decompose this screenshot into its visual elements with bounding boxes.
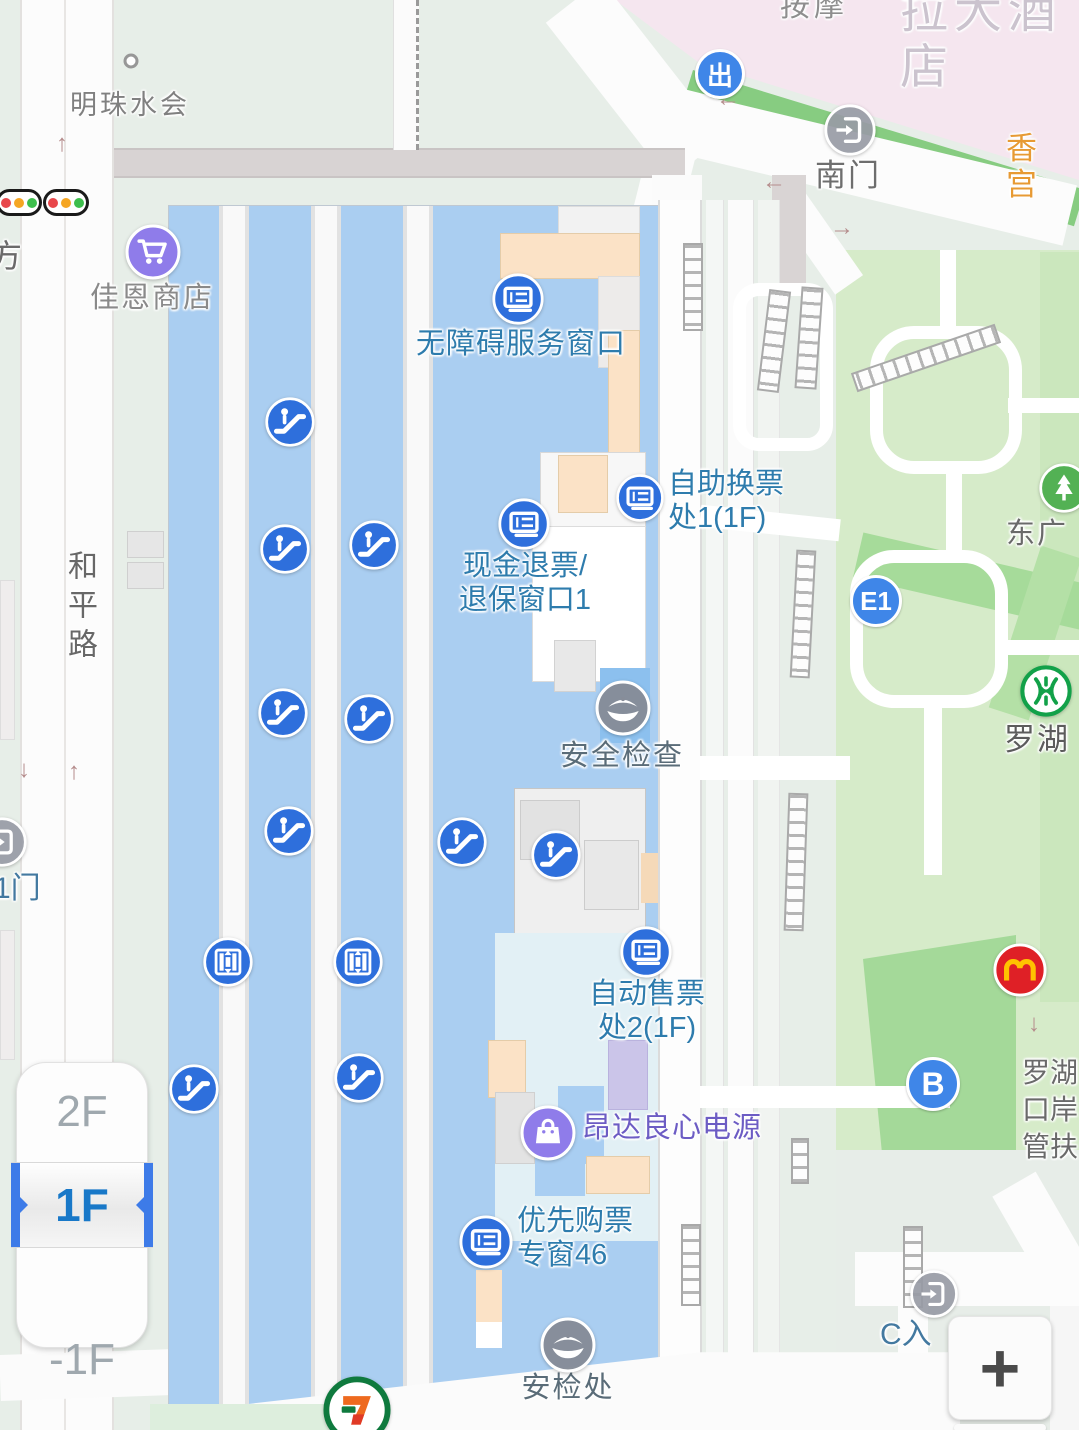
escalator-icon[interactable] [257,687,309,739]
cash-refund-window-label[interactable]: 现金退票/ 退保窗口1 [459,550,591,617]
park-path [700,756,850,780]
park-path [940,250,956,332]
bag-icon[interactable] [519,1104,577,1162]
floor-minus1f-label: -1F [49,1335,115,1385]
floor-2f-label: 2F [56,1087,107,1137]
selection-bar-left [11,1163,20,1247]
road-arrow-icon: ↑ [68,758,80,786]
elevator-icon[interactable] [332,936,384,988]
platform-block [127,531,164,558]
corridor [706,200,724,1430]
park-path [946,462,962,558]
tree-icon[interactable] [1038,462,1079,514]
angda-power-label[interactable]: 昂达良心电源 [582,1112,762,1146]
roadside-building [0,930,15,1060]
zoom-out-button-partial[interactable] [954,1424,1046,1430]
traffic-icon [43,189,89,235]
c-entrance-label[interactable]: C入 [880,1318,932,1353]
jiaen-store-label[interactable]: 佳恩商店 [90,282,214,316]
road-arrow-icon: ← [716,85,740,113]
map-badge-B[interactable]: B [906,1057,960,1111]
room [608,1040,648,1110]
zoom-in-button[interactable]: + [948,1316,1052,1420]
elevator-icon[interactable] [202,936,254,988]
park-path-loop [850,550,1008,708]
floor-2f-button[interactable]: 2F [16,1062,148,1162]
room [586,1156,650,1194]
stairs-icon [791,1138,809,1184]
seven-icon[interactable] [322,1375,392,1430]
map-badge-E1[interactable]: E1 [850,575,902,627]
ticket-icon[interactable] [458,1214,514,1270]
east-plaza-label: 东广 [1006,518,1068,552]
gate-icon[interactable] [823,103,877,157]
room [535,1158,585,1196]
ticket-icon[interactable] [497,497,551,551]
room [476,1270,502,1322]
escalator-icon[interactable] [343,693,395,745]
ticket-exchange-1-label[interactable]: 自助换票 处1(1F) [668,468,784,535]
park-path [924,700,942,875]
escalator-icon[interactable] [348,519,400,571]
poidot-icon [124,54,139,69]
zoom-in-label: + [980,1333,1021,1403]
roadside-building [0,580,15,740]
lawn-corner [150,1404,335,1430]
ticket-office-2-label[interactable]: 自动售票 处2(1F) [589,978,705,1045]
south-gate-label[interactable]: 南门 [815,158,881,194]
hotel-label: 拉大酒店 [900,0,1079,95]
floor-selector[interactable]: 2F 1F -1F [16,1062,148,1348]
barrier-free-window-label[interactable]: 无障碍服务窗口 [416,328,626,362]
park-path [1008,398,1079,413]
ticket-icon[interactable] [619,925,673,979]
road-arrow-icon: → [830,214,854,242]
road [393,0,419,150]
escalator-icon[interactable] [168,1063,220,1115]
room [558,455,608,513]
park-path [998,640,1079,655]
stairs-icon [790,550,817,679]
room [554,640,596,692]
security-check-label[interactable]: 安全检查 [560,740,684,774]
stairs-icon [683,243,703,331]
stairs-icon [784,793,809,932]
elevated-road [85,148,685,178]
escalator-icon[interactable] [259,523,311,575]
floor-1f-label: 1F [55,1178,109,1232]
indoor-map-canvas[interactable]: 拉大酒店按摩明珠水会佳恩商店无障碍服务窗口自助换票 处1(1F)现金退票/ 退保… [0,0,1079,1430]
escalator-icon[interactable] [264,396,316,448]
floor-minus1f-button[interactable]: -1F [16,1310,148,1410]
security-checkpoint-label[interactable]: 安检处 [521,1372,614,1406]
ticket-icon[interactable] [491,272,545,326]
gate-icon[interactable] [909,1269,959,1319]
room [476,1322,502,1348]
luohu-metro-label[interactable]: 罗湖 [1004,722,1070,758]
stairs-icon [681,1224,701,1306]
security-icon[interactable] [594,679,652,737]
road-arrow-icon: ↓ [1028,1010,1040,1038]
room [641,853,658,903]
road-arrow-icon: ↑ [56,130,68,158]
metro-icon[interactable] [1019,664,1073,718]
road-arrow-icon: ← [762,168,786,196]
gate-1-label[interactable]: 1门 [0,872,41,907]
escalator-icon[interactable] [333,1052,385,1104]
escalator-icon[interactable] [436,816,488,868]
luohu-port-label: 罗湖 口岸 管扶 [1022,1055,1078,1166]
room [584,840,639,910]
room [488,1040,526,1098]
mcdonalds-icon[interactable] [992,942,1048,998]
road-arrow-icon: ↓ [18,756,30,784]
priority-ticket-window-label[interactable]: 优先购票 专窗46 [517,1205,633,1272]
massage-label: 按摩 [780,0,848,25]
platform-block [127,562,164,589]
escalator-icon[interactable] [530,829,582,881]
traffic-icon [0,189,42,235]
room [558,206,640,236]
heping-road-label: 和平路 [64,550,94,667]
gate-icon[interactable] [0,816,28,868]
mingzhu-club-label: 明珠水会 [70,90,190,121]
security-icon[interactable] [539,1316,597,1374]
selection-bar-right [144,1163,153,1247]
cart-icon[interactable] [124,223,182,281]
fang-label: 方 [0,238,22,275]
escalator-icon[interactable] [263,805,315,857]
road [1050,1306,1079,1430]
ticket-icon[interactable] [615,473,665,523]
xianggong-label[interactable]: 香宫 [995,131,1051,203]
floor-1f-button-selected[interactable]: 1F [11,1162,153,1248]
